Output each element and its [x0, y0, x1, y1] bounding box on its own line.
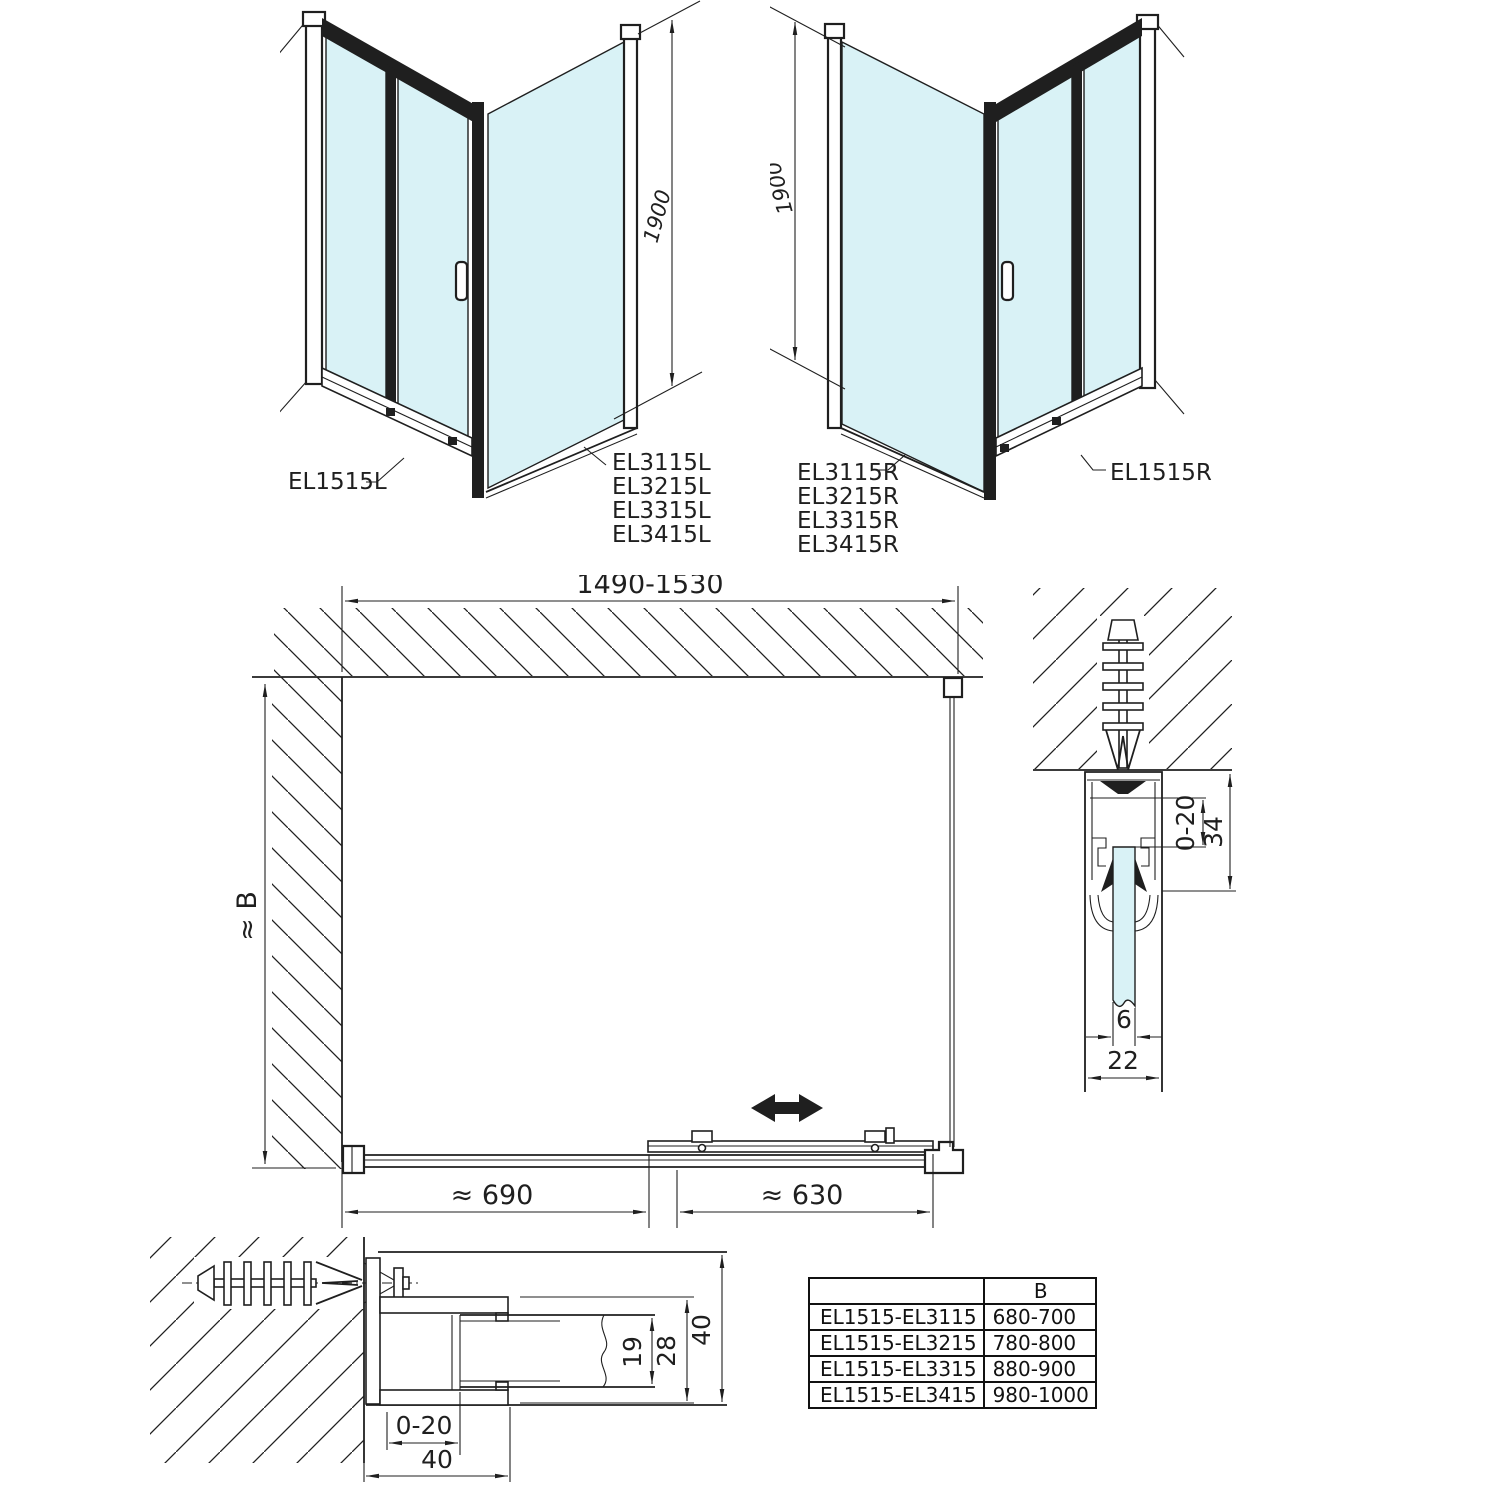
profile-width-text: 40 [421, 1445, 453, 1474]
glass-thickness-dimension: 6 [1086, 1005, 1162, 1037]
iso-view-right: 1900 EL3115R EL3215R EL3315R EL3415R EL1… [770, 0, 1260, 560]
sliding-door-right [984, 15, 1184, 500]
sliding-section-dimension: ≈ 630 [677, 1154, 933, 1228]
glass-thickness-text: 6 [1116, 1005, 1132, 1034]
model-header-cell [809, 1278, 984, 1304]
profile-width-text: 22 [1107, 1046, 1139, 1075]
adjust-dim-text: 0-20 [1171, 795, 1200, 852]
model-cell: EL1515-EL3415 [809, 1382, 984, 1408]
table-row: EL1515-EL3215 780-800 [809, 1330, 1096, 1356]
glass-clamp-dimension: 19 [618, 1318, 652, 1384]
wall-hatch-top [274, 608, 983, 676]
channel-dim-text: 28 [652, 1335, 681, 1367]
width-dim-text: 1490-1530 [576, 575, 723, 600]
model-cell: EL1515-EL3315 [809, 1356, 984, 1382]
door-handle [1002, 262, 1013, 300]
panel-model-label: EL3215L [612, 474, 711, 500]
screw-head [394, 1268, 403, 1298]
model-cell: EL1515-EL3115 [809, 1304, 984, 1330]
fixed-section-dimension: ≈ 690 [342, 1155, 649, 1228]
slide-direction-arrow [751, 1094, 823, 1122]
table-header-row: B [809, 1278, 1096, 1304]
panel-leader-line [584, 447, 606, 465]
wall-profile-top-view [944, 678, 962, 697]
door-glass-fixed [326, 34, 386, 414]
side-panel-glass [842, 42, 984, 492]
profile-depth-text: 34 [1199, 816, 1228, 848]
mid-stile [386, 64, 396, 416]
table-row: EL1515-EL3415 980-1000 [809, 1382, 1096, 1408]
door-model-label: EL1515L [288, 469, 387, 495]
adjust-dimension: 0-20 [1090, 795, 1206, 852]
door-glass-fixed [998, 72, 1072, 442]
wall-profile-section-detail: 0-20 34 6 22 [1020, 575, 1265, 1110]
panel-model-label: EL3115R [797, 460, 899, 486]
panel-model-label: EL3315L [612, 498, 711, 524]
roller-carriage [865, 1131, 885, 1142]
plan-view: 1490-1530 ≈ B [230, 575, 1010, 1240]
side-panel-right [825, 24, 984, 498]
technical-drawing-sheet: 1900 EL1515L EL3115L EL3215L EL3315L EL3… [0, 0, 1500, 1500]
door-glass-sliding [1084, 34, 1140, 404]
glass-pane-section [1113, 847, 1135, 1006]
fixed-dim-text: ≈ 690 [451, 1180, 534, 1211]
height-dim-text: 1900 [639, 187, 676, 245]
corner-post [472, 102, 484, 498]
model-cell: EL1515-EL3215 [809, 1330, 984, 1356]
wall-profile-plan-section-detail: 19 28 40 0-20 40 [120, 1228, 780, 1500]
roller-carriage [692, 1131, 712, 1142]
corner-post [984, 102, 996, 500]
panel-model-label: EL3215R [797, 484, 899, 510]
door-glass-sliding [398, 72, 468, 440]
wall-hatch-left [272, 677, 342, 1169]
break-line [601, 1315, 606, 1387]
height-dim-text: 1900 [770, 159, 798, 217]
door-model-label: EL1515R [1110, 460, 1212, 486]
wall-bracket [343, 1146, 364, 1173]
side-panel-glass [488, 42, 624, 488]
side-panel-left [486, 25, 640, 498]
profile-depth-text: 40 [687, 1314, 716, 1346]
panel-model-label: EL3315R [797, 508, 899, 534]
sliding-dim-text: ≈ 630 [761, 1180, 844, 1211]
size-table: B EL1515-EL3115 680-700 EL1515-EL3215 78… [808, 1277, 1097, 1409]
b-value-cell: 780-800 [984, 1330, 1096, 1356]
depth-dim-text: ≈ B [232, 891, 263, 941]
b-value-cell: 680-700 [984, 1304, 1096, 1330]
wall-profile [366, 1252, 727, 1405]
profile-depth-dimension: 40 [687, 1255, 722, 1402]
sliding-door-left [280, 12, 484, 498]
glass-clamp-text: 19 [618, 1336, 647, 1368]
table-row: EL1515-EL3315 880-900 [809, 1356, 1096, 1382]
bottom-track-assembly [343, 1128, 963, 1173]
b-header-cell: B [984, 1278, 1096, 1304]
screw-head [1100, 781, 1146, 794]
door-handle [456, 262, 467, 300]
side-panel-top-view [944, 678, 962, 1147]
panel-model-label: EL3115L [612, 450, 711, 476]
profile-width-dimension: 22 [1088, 1046, 1159, 1078]
adjust-dim-text: 0-20 [396, 1411, 453, 1440]
b-value-cell: 980-1000 [984, 1382, 1096, 1408]
panel-model-label: EL3415R [797, 532, 899, 558]
b-value-cell: 880-900 [984, 1356, 1096, 1382]
door-leader-line [1081, 455, 1106, 470]
panel-model-label: EL3415L [612, 522, 711, 548]
table-row: EL1515-EL3115 680-700 [809, 1304, 1096, 1330]
mid-stile [1072, 60, 1082, 412]
iso-view-left: 1900 EL1515L EL3115L EL3215L EL3315L EL3… [280, 0, 730, 560]
door-stopper [886, 1128, 894, 1143]
